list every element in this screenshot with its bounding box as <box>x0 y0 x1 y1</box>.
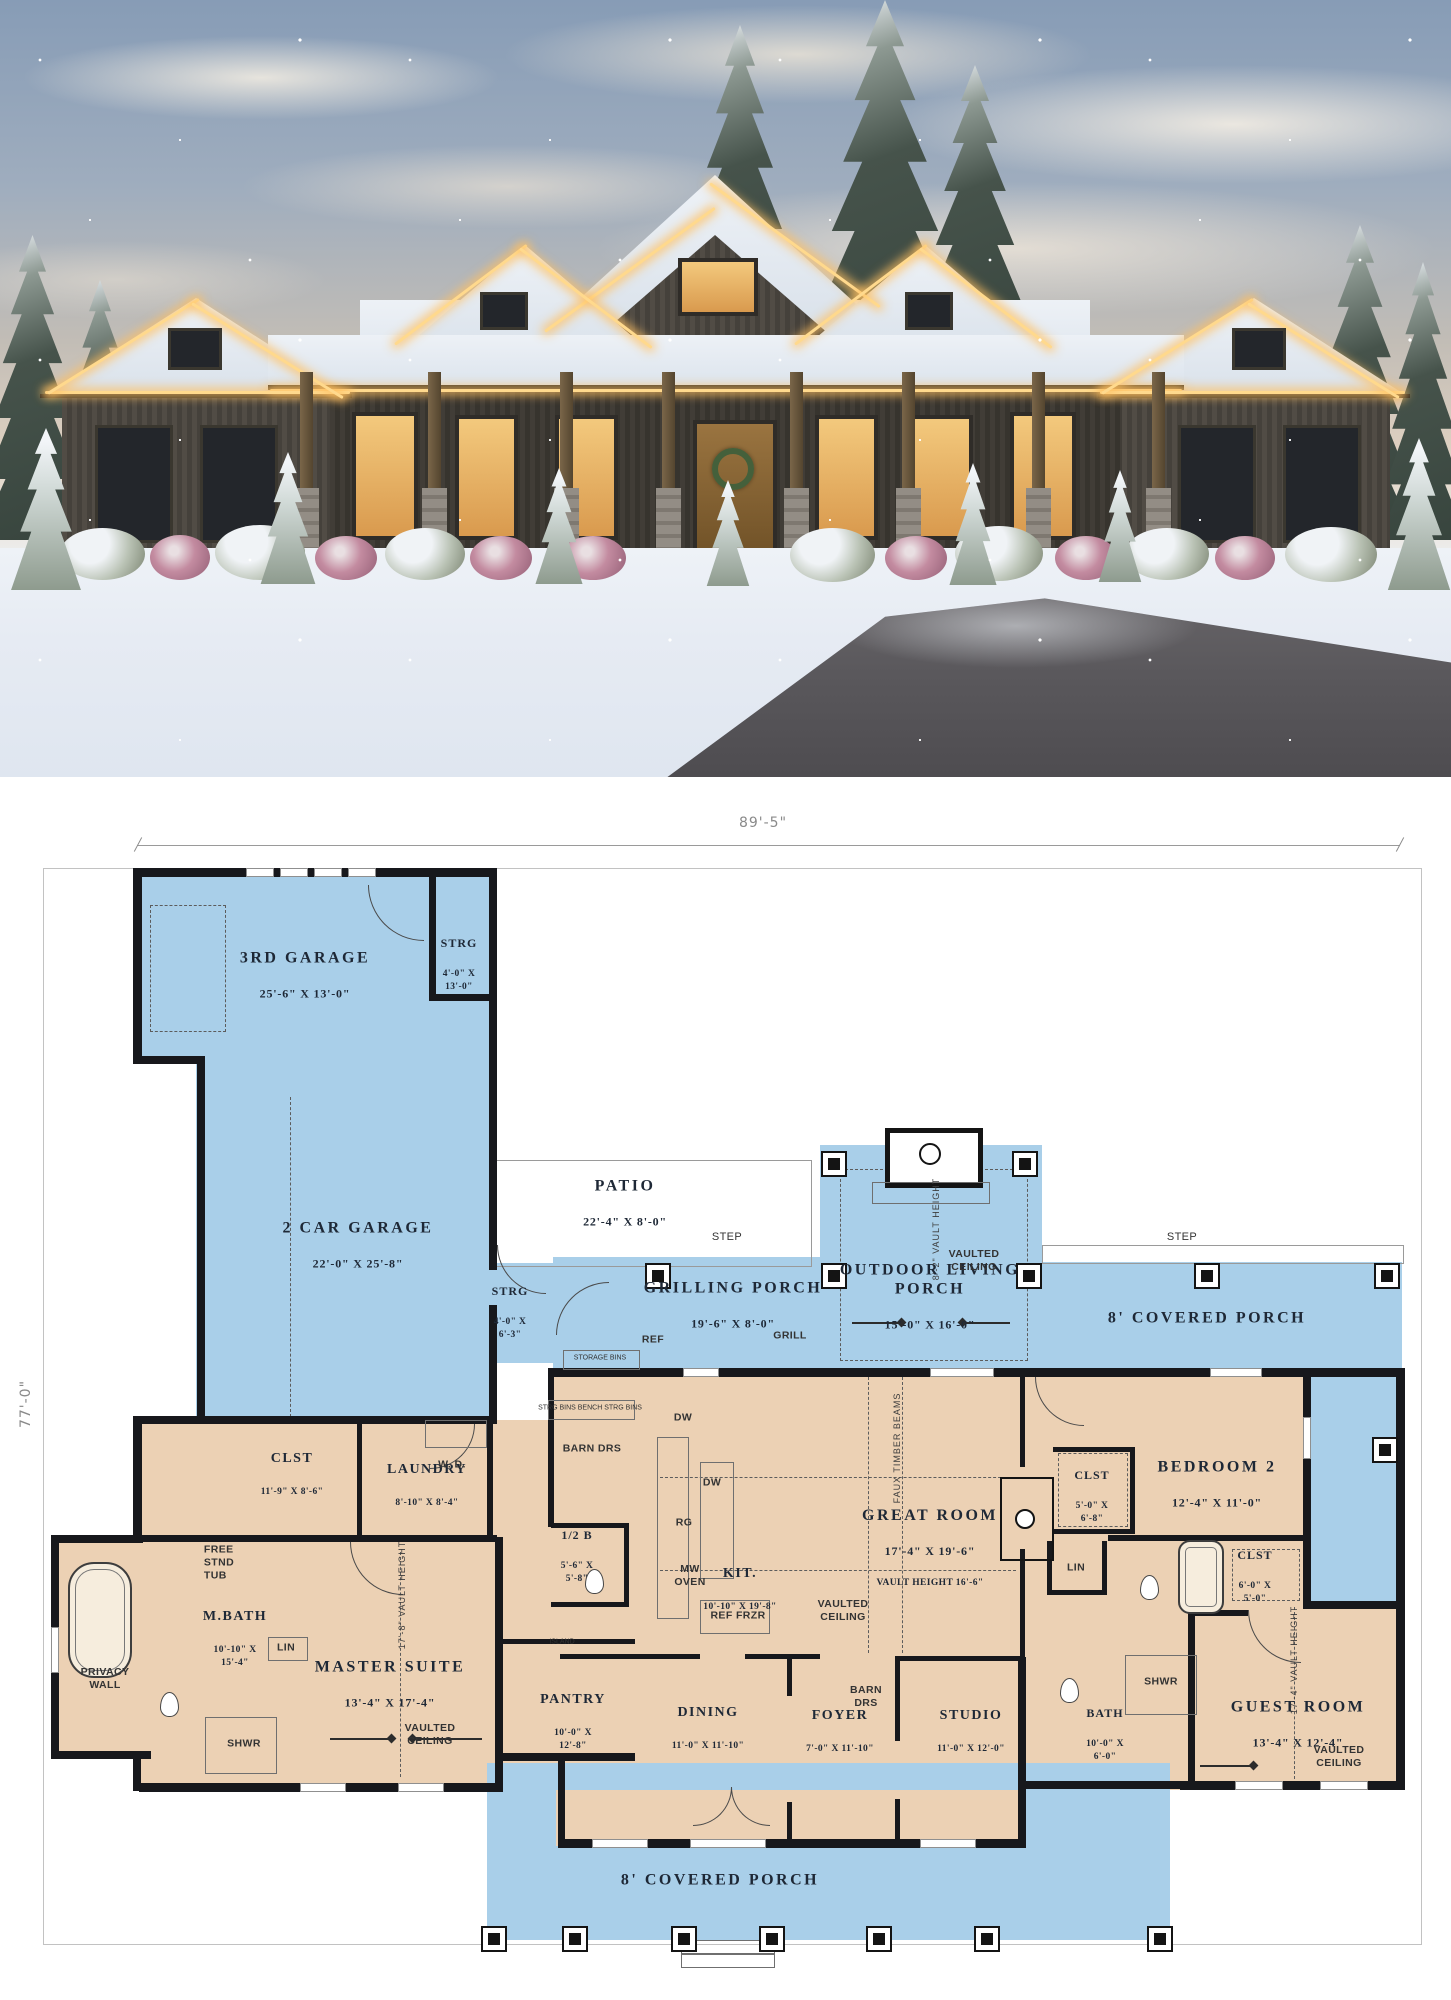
wall <box>895 1661 900 1741</box>
porch-column <box>1194 1263 1220 1289</box>
room-label-master-closet: CLST 11'-9" X 8'-6" <box>261 1433 324 1517</box>
fridge-freezer-label: REF FRZR <box>710 1609 765 1622</box>
step-label: STEP <box>712 1231 742 1245</box>
wall <box>1018 1657 1026 1848</box>
window <box>930 1368 994 1377</box>
wall <box>560 1654 700 1659</box>
window <box>246 868 274 877</box>
room-label-right-covered-porch: 8' COVERED PORCH <box>1108 1290 1306 1345</box>
overall-width-dimension: 89'-5" <box>739 815 787 831</box>
washer-dryer-label: W. D. <box>438 1458 466 1471</box>
window <box>280 868 308 877</box>
toilet <box>1060 1678 1079 1703</box>
wall <box>197 1056 205 1423</box>
wall <box>357 1420 362 1540</box>
vaulted-ceiling-label: VAULTED CEILING <box>1314 1744 1365 1770</box>
step-label: STEP <box>1167 1231 1197 1245</box>
right-porch-strip <box>1311 1377 1402 1603</box>
porch-column <box>759 1926 785 1952</box>
exterior-photo <box>0 0 1451 777</box>
right-porch-step-outline <box>1042 1245 1404 1264</box>
room-label-great-room: GREAT ROOM 17'-4" X 19'-6" VAULT HEIGHT … <box>862 1488 998 1608</box>
porch-column <box>1372 1437 1398 1463</box>
vaulted-ceiling-label: VAULTED CEILING <box>405 1722 456 1748</box>
wall <box>787 1802 792 1842</box>
room-label-3rd-garage: 3RD GARAGE 25'-6" X 13'-0" <box>240 930 370 1019</box>
wall <box>429 876 436 1001</box>
window <box>920 1839 976 1848</box>
room-label-bath: BATH 10'-0" X 6'-0" <box>1086 1688 1124 1782</box>
bathtub <box>1178 1540 1224 1614</box>
toilet <box>160 1692 179 1717</box>
wall <box>133 1535 497 1542</box>
width-dimension-line <box>137 845 1400 846</box>
room-label-master-suite: MASTER SUITE 13'-4" X 17'-4" <box>315 1639 465 1728</box>
wall <box>487 1420 493 1540</box>
room-label-studio: STUDIO 11'-0" X 12'-0" <box>937 1690 1005 1774</box>
bins-bench-label: STRG BINS BENCH STRG BINS <box>538 1405 642 1414</box>
window <box>51 1627 59 1673</box>
wall <box>558 1761 565 1847</box>
faux-timber-beams-label: FAUX TIMBER BEAMS <box>892 1393 902 1504</box>
window <box>348 868 376 877</box>
porch-column <box>1147 1926 1173 1952</box>
wall <box>133 868 142 1064</box>
dishwasher-label: DW <box>703 1476 721 1489</box>
overall-depth-dimension: 77'-0" <box>18 1380 34 1428</box>
shower-label: SHWR <box>1144 1675 1178 1688</box>
porch-column <box>821 1151 847 1177</box>
window <box>398 1783 444 1792</box>
porch-column <box>671 1926 697 1952</box>
wall <box>1130 1447 1135 1534</box>
microwave-oven-label: MW OVEN <box>674 1563 705 1589</box>
porch-column <box>562 1926 588 1952</box>
room-label-dining: DINING 11'-0" X 11'-10" <box>672 1687 744 1771</box>
linen-label: LIN <box>1067 1561 1085 1574</box>
wall <box>489 868 497 1270</box>
fireplace-flue <box>919 1143 941 1165</box>
vaulted-ceiling-label: VAULTED CEILING <box>818 1598 869 1624</box>
room-label-strg2: STRG 4'-0" X 6'-3" <box>492 1266 529 1360</box>
wall <box>895 1656 1023 1661</box>
arrow-line <box>330 1738 390 1740</box>
wall <box>1303 1601 1404 1609</box>
wall <box>1396 1368 1405 1790</box>
porch-column <box>974 1926 1000 1952</box>
wall <box>745 1654 820 1659</box>
room-label-bedroom2-closet: CLST 5'-0" X 6'-8" <box>1074 1450 1109 1544</box>
floor-plan: 89'-5" 77'-0" <box>0 777 1451 2000</box>
wall <box>133 1056 205 1064</box>
room-label-master-bath: M.BATH 10'-10" X 15'-4" <box>203 1591 267 1687</box>
wall <box>1102 1541 1107 1595</box>
window <box>1210 1368 1262 1377</box>
porch-column <box>1012 1151 1038 1177</box>
room-label-patio: PATIO 22'-4" X 8'-0" <box>583 1158 667 1247</box>
vault-height-label: 8'-2" VAULT HEIGHT <box>931 1178 941 1280</box>
wall <box>51 1535 143 1543</box>
house-plan-page: 89'-5" 77'-0" <box>0 0 1451 2000</box>
shower-label: SHWR <box>227 1737 261 1750</box>
room-label-bedroom-2: BEDROOM 2 12'-4" X 11'-0" <box>1158 1439 1277 1528</box>
toilet <box>1140 1575 1159 1600</box>
vaulted-ceiling-label: VAULTED CEILING <box>949 1248 1000 1274</box>
window <box>683 1368 719 1377</box>
window <box>690 1839 766 1848</box>
vault-height-label: 17'-8" VAULT HEIGHT <box>397 1541 407 1649</box>
media-wall-circle <box>1015 1509 1035 1529</box>
free-standing-tub-label: FREE STND TUB <box>204 1543 234 1582</box>
freestanding-tub <box>68 1562 132 1678</box>
storage-bins-label: STORAGE BINS <box>574 1355 626 1364</box>
window <box>592 1839 648 1848</box>
porch-column <box>1374 1263 1400 1289</box>
grill-label: GRILL <box>773 1329 807 1342</box>
wall <box>133 1416 142 1542</box>
window <box>300 1783 346 1792</box>
wall <box>1180 1781 1404 1790</box>
barn-doors-label: BARN DRS <box>563 1442 622 1455</box>
porch-column <box>866 1926 892 1952</box>
island-label: ISLAND <box>549 1639 574 1648</box>
room-label-strg1: STRG 4'-0" X 13'-0" <box>441 918 478 1012</box>
wall <box>787 1654 792 1696</box>
dishwasher-label: DW <box>674 1411 692 1424</box>
wall <box>624 1523 629 1607</box>
window <box>1303 1417 1311 1459</box>
front-steps <box>681 1953 775 1968</box>
room-label-2-car-garage: 2 CAR GARAGE 22'-0" X 25'-8" <box>283 1200 434 1289</box>
window <box>314 868 342 877</box>
wall <box>1020 1549 1025 1659</box>
privacy-wall-label: PRIVACY WALL <box>81 1666 130 1692</box>
room-label-pantry: PANTRY 10'-0" X 12'-8" <box>540 1674 606 1770</box>
wall <box>1018 1781 1188 1789</box>
linen-box <box>268 1637 308 1661</box>
snowflakes <box>0 0 1451 777</box>
wall <box>895 1799 900 1842</box>
fridge-label: REF <box>642 1333 664 1346</box>
room-label-guest-closet: CLST 6'-0" X 5'-0" <box>1237 1530 1272 1624</box>
window <box>1235 1781 1283 1790</box>
garage-dashed-bay <box>150 905 226 1032</box>
room-label-half-bath: 1/2 B 5'-6" X 5'-8" <box>561 1510 594 1604</box>
vault-height-label: 17'-4" VAULT HEIGHT <box>1289 1606 1299 1714</box>
wall <box>1303 1372 1311 1609</box>
barn-doors-label: BARN DRS <box>850 1684 882 1710</box>
wall <box>1047 1590 1107 1595</box>
room-label-bottom-covered-porch: 8' COVERED PORCH <box>621 1852 819 1907</box>
room-label-laundry: LAUNDRY 8'-10" X 8'-4" <box>387 1444 467 1528</box>
range-label: RG <box>676 1516 693 1529</box>
porch-column <box>481 1926 507 1952</box>
wall <box>1020 1377 1025 1467</box>
window <box>1320 1781 1368 1790</box>
